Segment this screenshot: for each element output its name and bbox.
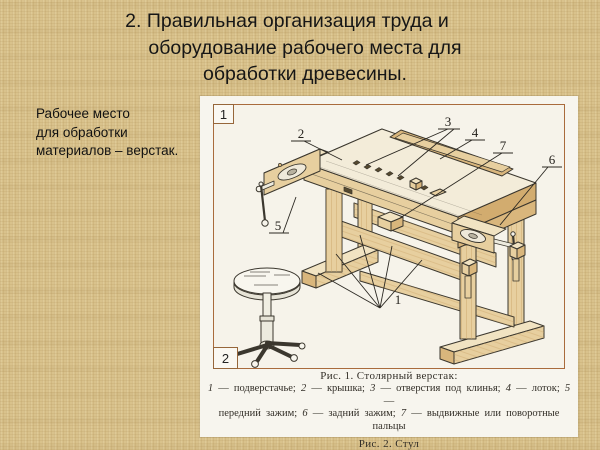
- figure-index-badge-2: 2: [213, 347, 238, 369]
- part-label-5: 5: [275, 218, 282, 233]
- figure-panel: 2347651 1 2 Рис. 1. Столярный верстак: 1…: [200, 96, 578, 437]
- workbench-drawing: [256, 129, 544, 364]
- part-label-7: 7: [500, 138, 507, 153]
- figure-index-badge-1: 1: [213, 104, 234, 124]
- slide-title: 2. Правильная организация труда и оборуд…: [55, 8, 555, 88]
- side-note-line: Рабочее место: [36, 105, 211, 124]
- presentation-slide: 2. Правильная организация труда и оборуд…: [0, 0, 600, 450]
- figure-frame: 2347651 1 2: [213, 104, 565, 369]
- slide-title-line: оборудование рабочего места для: [55, 35, 555, 62]
- side-note-line: материалов – верстак.: [36, 142, 211, 161]
- figure-legend-line-1: 1 — подверстачье; 2 — крышка; 3 — отверс…: [200, 383, 578, 408]
- legend-text: передний зажим;: [219, 408, 303, 419]
- legend-text: — крышка;: [306, 383, 370, 394]
- part-label-6: 6: [549, 152, 556, 167]
- stool-drawing: [229, 268, 305, 367]
- part-label-1: 1: [395, 292, 402, 307]
- workbench-and-stool-illustration: 2347651: [214, 105, 564, 368]
- figure-caption: Рис. 1. Столярный верстак: 1 — подверста…: [200, 370, 578, 450]
- figure-1-caption: Рис. 1. Столярный верстак:: [200, 370, 578, 383]
- slide-title-line: обработки древесины.: [55, 61, 555, 88]
- side-note: Рабочее место для обработки материалов –…: [36, 105, 211, 161]
- figure-2-caption: Рис. 2. Стул: [200, 438, 578, 450]
- part-label-3: 3: [445, 114, 452, 129]
- legend-text: —: [384, 396, 395, 407]
- slide-title-line: 2. Правильная организация труда и: [55, 8, 519, 35]
- part-label-2: 2: [298, 126, 305, 141]
- side-note-line: для обработки: [36, 124, 211, 143]
- part-label-4: 4: [472, 125, 479, 140]
- legend-text: — подверстачье;: [213, 383, 301, 394]
- legend-text: — лоток;: [511, 383, 565, 394]
- legend-text: — отверстия под клинья;: [375, 383, 505, 394]
- figure-legend-line-2: передний зажим; 6 — задний зажим; 7 — вы…: [200, 408, 578, 433]
- legend-number: 5: [565, 383, 570, 394]
- legend-text: — задний зажим;: [308, 408, 401, 419]
